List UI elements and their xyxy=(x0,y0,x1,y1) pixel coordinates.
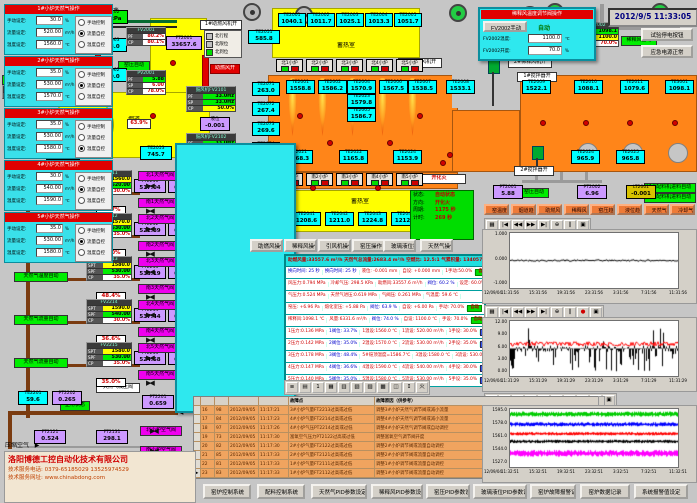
burner-off-indicator xyxy=(411,180,419,186)
instrument-value: 1011.7 xyxy=(308,19,334,25)
alarm-row-marker xyxy=(194,415,201,424)
burner-on-indicator xyxy=(371,66,379,72)
valve-icon[interactable]: ▶◀ xyxy=(146,226,153,233)
field-input[interactable]: 1580.0 xyxy=(36,248,63,257)
instrument-box-TE3001: TE30011098.1 xyxy=(665,80,694,94)
x-axis-tick: 11:32:51 xyxy=(501,469,519,474)
radio-dot[interactable] xyxy=(78,71,85,78)
instrument-box-FT2001: FT200133657.6 xyxy=(166,36,202,50)
summary-cell: 1温设:1560.0 ℃ xyxy=(360,330,400,334)
summary-cell: 手设: 70.0% xyxy=(440,318,471,322)
gas-auto-label: 天然气流量自动 xyxy=(14,315,68,325)
alarm-cell-time: 11:17:23 xyxy=(259,415,289,424)
burner-南3小炉: 南3小炉 xyxy=(336,173,363,186)
alarm-cell-fault: 3#小炉气量FT2213过高或过低 xyxy=(289,406,375,415)
summary-cell: 4流设: 540.00 m³/h xyxy=(400,366,447,370)
instrument-value: 965.8 xyxy=(617,156,644,162)
radio-label: 温度自控 xyxy=(87,250,105,256)
summary-cell: 4阀位: 36.6% xyxy=(327,366,360,370)
instrument-box-TE2001: TE20011558.8 xyxy=(286,80,315,94)
radio-label: 手动控制 xyxy=(87,124,105,130)
x-axis-tick: 23:32:51 xyxy=(585,469,603,474)
instrument-value: 1538.5 xyxy=(409,86,436,92)
radio-option[interactable]: 手动控制 xyxy=(76,121,111,132)
button-试验停电按钮[interactable]: 试验停电按钮 xyxy=(641,28,693,41)
trend-button-窑压趋势[interactable]: 窑压趋势 xyxy=(590,204,615,215)
burner-off-indicator xyxy=(321,180,329,186)
burner-off-indicator xyxy=(351,66,359,72)
radio-dot[interactable] xyxy=(78,134,85,141)
radio-option[interactable]: 流量自控 xyxy=(76,236,111,247)
radio-option[interactable]: 手动控制 xyxy=(76,69,111,80)
radio-option[interactable]: 温度自控 xyxy=(76,143,111,154)
field-label: 流量设定: xyxy=(7,134,27,140)
x-axis-tick: 19:32:51 xyxy=(557,469,575,474)
panel-param: CP xyxy=(127,40,143,45)
trend-chart-2: 1595.01578.01561.01544.01527.012/09/0411… xyxy=(482,405,697,483)
toolbar-icon[interactable]: ▥ xyxy=(338,382,350,393)
burner-gas-panel-title: 3#小炉天然气操作 xyxy=(5,109,112,118)
pipe xyxy=(8,411,178,415)
radio-label: 流量自控 xyxy=(87,83,105,89)
instrument-box-TE2053: TE2053745.7 xyxy=(140,146,172,160)
alarm-cell-date: 2012/09/05 xyxy=(229,406,259,415)
panel-value: 5.88 xyxy=(143,77,165,82)
y-axis-tick: 0.000 xyxy=(485,256,507,261)
radio-label: 流量自控 xyxy=(87,187,105,193)
toolbar-icon[interactable]: ▩ xyxy=(377,382,389,393)
summary-cell: 5手设: 35.0% xyxy=(447,378,480,382)
alarm-cell-fault: 2#小炉气量FT2122过高或过低 xyxy=(289,442,375,451)
alarm-cell-code: 83 xyxy=(215,469,229,478)
y-axis-tick: 1595.0 xyxy=(485,407,507,412)
summary-row: 稀释风:1098.1 ℃风量:6331.6 m³/h阀位: 74.0 %自设: … xyxy=(286,315,484,327)
summary-row: 窑压: +6.96 Pa熔化室压: +5.88 Pa阀位: 63.9 %自设: … xyxy=(286,303,484,315)
toolbar-icon[interactable]: ≡ xyxy=(286,382,298,393)
field-unit: ℃ xyxy=(65,42,70,47)
burner-on-indicator xyxy=(311,66,319,72)
field-label: 温度设定: xyxy=(7,250,27,256)
radio-dot[interactable] xyxy=(78,19,85,26)
x-axis-tick: 19:31:29 xyxy=(557,378,575,383)
burner-gas-panel-1: 1#小炉天然气操作手动设定:30.0%流量设定:520.00m³/h温度设定:1… xyxy=(4,4,113,55)
instrument-value: 965.9 xyxy=(572,156,599,162)
controller-panel-FV2001: FV2001PF80.2%CP80.1% xyxy=(126,27,166,46)
control-mode-radios: 手动控制流量自控温度自控 xyxy=(75,68,112,106)
field-input[interactable]: 530.00 xyxy=(36,80,63,89)
op-button-引风机操作[interactable]: 引风机操作 xyxy=(318,239,351,252)
valve-icon[interactable]: ▶◀ xyxy=(146,183,153,190)
burner-北1小炉: 北1小炉 xyxy=(276,59,303,72)
summary-cell: 1手设: 30.0% xyxy=(447,330,480,334)
instrument-value: 1586.2 xyxy=(319,86,346,92)
alarm-header-cell xyxy=(259,397,289,406)
bottom-button-窑炉故障报警记录[interactable]: 窑炉故障报警记录 xyxy=(530,484,576,499)
dilution-field-unit: % xyxy=(565,48,569,53)
trend-button-窑温度趋势[interactable]: 窑温度趋势 xyxy=(484,204,509,215)
gas-valve-position: 35.0% xyxy=(96,378,126,387)
radio-option[interactable]: 流量自控 xyxy=(76,28,111,39)
field-input[interactable]: 1570.0 xyxy=(36,92,63,101)
burner-南5小炉: 南5小炉 xyxy=(396,173,423,186)
bottom-button-配料控制系统[interactable]: 配料控制系统 xyxy=(257,484,305,499)
instrument-value: 1040.1 xyxy=(279,19,305,25)
instrument-box-TE2024: TE20241153.9 xyxy=(393,150,422,164)
field-unit: m³/h xyxy=(65,82,74,87)
field-label: 手动设定: xyxy=(7,18,27,24)
bottom-button-稀释风PID参数设定[interactable]: 稀释风PID参数设定 xyxy=(371,484,423,499)
button-应急电源正常[interactable]: 应急电源正常 xyxy=(641,45,693,58)
summary-cell: 风量:6331.6 m³/h xyxy=(327,318,369,322)
radio-label: 流量自控 xyxy=(87,239,105,245)
vendor-name: 洛阳博德工控自动化技术有限公司 xyxy=(8,454,192,465)
radio-dot[interactable] xyxy=(78,145,85,152)
alarm-cell-time: 11:17:30 xyxy=(259,442,289,451)
alarm-cell-code: 81 xyxy=(215,460,229,469)
panel-value: 35.0% xyxy=(103,361,131,366)
alarm-cell-time: 11:17:33 xyxy=(259,451,289,460)
radio-label: 手动控制 xyxy=(87,72,105,78)
field-input[interactable]: 1590.0 xyxy=(36,196,63,205)
instrument-box-PT2001: PT20015.88 xyxy=(493,185,523,199)
instrument-value: 0.265 xyxy=(53,397,81,403)
panel-param: SPF xyxy=(87,269,103,274)
instrument-value: 1088.1 xyxy=(575,86,602,92)
alarm-cell-code: 98 xyxy=(215,406,229,415)
radio-option[interactable]: 流量自控 xyxy=(76,132,111,143)
status-key: 周期: xyxy=(413,207,435,215)
x-axis-tick: 15:32:51 xyxy=(529,469,547,474)
instrument-box-TE2008: TE20081533.1 xyxy=(446,80,475,94)
bottom-button-玻璃液位PID参数设定[interactable]: 玻璃液位PID参数设定 xyxy=(473,484,527,499)
controller-panel-鼓风机FV2101: 鼓风机FV2101PF33.0HzSP33.0HzCP50.0% xyxy=(186,86,236,112)
dilution-field-input[interactable]: 70.0 xyxy=(528,46,562,55)
radio-dot[interactable] xyxy=(78,41,85,48)
instrument-value: 1165.8 xyxy=(340,156,367,162)
summary-cell: 4手设: 30.0% xyxy=(447,366,480,370)
field-unit: ℃ xyxy=(65,198,70,203)
radio-dot[interactable] xyxy=(78,93,85,100)
scada-furnace-overview-screen: 1#余热锅炉2#余热锅炉烟气◀软化水◀烟囱烟道窑压自动助燃风开1#助燃风机开1#… xyxy=(0,0,697,503)
field-unit: % xyxy=(65,70,69,75)
summary-cell: 阀位: 63.9 % xyxy=(368,306,400,310)
instrument-value: 33657.6 xyxy=(167,42,201,48)
alarm-row-marker xyxy=(194,406,201,415)
panel-value: 1580.0 xyxy=(103,349,131,354)
summary-row: 风压力:0.794 MPa冷却气压: 298.5 KPa助燃风:33557.6 … xyxy=(286,279,484,291)
summary-cell: 天然气进压:0.619 MPa xyxy=(329,294,380,298)
chart-plot-area xyxy=(509,408,679,468)
trend-chart-0: 1.0000.000-1.00012/09/0411:31:5615:31:56… xyxy=(482,229,697,304)
pipe xyxy=(560,172,563,181)
x-axis-date: 12/09/04 xyxy=(484,290,502,295)
alarm-cell-date: 2012/09/05 xyxy=(229,469,259,478)
y-axis-tick: 12.00 xyxy=(485,319,507,324)
trend-button-助燃风趋势[interactable]: 助燃风趋势 xyxy=(537,204,562,215)
field-unit: % xyxy=(65,174,69,179)
label-助燃风开: 助燃风开 xyxy=(210,64,240,74)
field-unit: % xyxy=(65,226,69,231)
alarm-cell-n: 16 xyxy=(201,406,215,415)
burner-on-indicator xyxy=(281,66,289,72)
radio-option[interactable]: 温度自控 xyxy=(76,195,111,206)
trend-button-冷却气趋势[interactable]: 冷却气趋势 xyxy=(670,204,695,215)
burner-on-indicator xyxy=(311,180,319,186)
summary-row: 1压力:0.136 MPa1阀位: 33.7%1温设:1560.0 ℃1流设: … xyxy=(286,327,484,339)
op-button-窑压操作[interactable]: 窑压操作 xyxy=(352,239,385,252)
field-input[interactable]: 530.00 xyxy=(36,236,63,245)
x-axis-tick: 11:31:29 xyxy=(501,378,519,383)
instrument-value: 0.659 xyxy=(143,401,173,407)
summary-cell: 3压力:0.178 MPa xyxy=(286,354,327,358)
x-axis-tick: 7:31:29 xyxy=(641,378,656,383)
alarm-cell-code: 85 xyxy=(215,451,229,460)
radio-option[interactable]: 手动控制 xyxy=(76,17,111,28)
dilution-field-unit: ℃ xyxy=(565,36,570,41)
summary-cell: 4压力:0.147 MPa xyxy=(286,366,327,370)
vendor-phone: 技术服务电话: 0379-65185029 13525974529 xyxy=(8,465,192,473)
instrument-value: -0.001 xyxy=(627,191,655,197)
x-axis-tick: 11:31:56 xyxy=(501,290,519,295)
instrument-value: 585.8 xyxy=(249,36,279,42)
y-axis-tick: 6.00 xyxy=(485,344,507,349)
panel-param: CP xyxy=(87,275,103,280)
alarm-header-cell xyxy=(215,397,229,406)
field-label: 流量设定: xyxy=(7,186,27,192)
x-axis-tick: 7:31:56 xyxy=(641,290,656,295)
panel-param: CP xyxy=(127,89,143,94)
field-label: 手动设定: xyxy=(7,70,27,76)
air-valve-icon[interactable]: ▶◀ xyxy=(150,428,157,435)
burner-gas-panel-title: 5#小炉天然气操作 xyxy=(5,213,112,222)
instrument-box-TE2024: TE2024965.9 xyxy=(571,150,600,164)
instrument-value: -0.001 xyxy=(201,123,229,129)
op-button-天然气操作[interactable]: 天然气操作 xyxy=(420,239,453,252)
field-label: 温度设定: xyxy=(7,146,27,152)
burner-gas-panel-3: 3#小炉天然气操作手动设定:35.0%流量设定:530.00m³/h温度设定:1… xyxy=(4,108,113,159)
field-input[interactable]: 1580.0 xyxy=(36,144,63,153)
panel-value: 530.00 xyxy=(103,355,131,360)
summary-cell: 5#碹顶温度=1586.7℃ xyxy=(360,354,413,358)
valve-icon[interactable]: ▶◀ xyxy=(146,380,153,387)
legend-label: 北到位 xyxy=(215,49,228,55)
summary-cell: 2阀位: 35.0% xyxy=(327,342,360,346)
burner-gas-panel-4: 4#小炉天然气操作手动设定:30.0%流量设定:540.00m³/h温度设定:1… xyxy=(4,160,113,211)
alarm-cell-code: 84 xyxy=(215,415,229,424)
bottom-button-系统报警值设定[interactable]: 系统报警值设定 xyxy=(634,484,688,499)
burner-on-indicator xyxy=(341,180,349,186)
field-input[interactable]: 35.0 xyxy=(36,120,63,129)
instrument-value: 1013.3 xyxy=(366,19,392,25)
panel-value: 30.0% xyxy=(103,318,131,323)
radio-option[interactable]: 手动控制 xyxy=(76,225,111,236)
trend-button-稀释风趋势[interactable]: 稀释风趋势 xyxy=(564,204,589,215)
bottom-button-天然气PID参数设定[interactable]: 天然气PID参数设定 xyxy=(311,484,367,499)
radio-option[interactable]: 流量自控 xyxy=(76,184,111,195)
instrument-box-TE2025: TE2025965.8 xyxy=(616,150,645,164)
alarm-cell-n: 19 xyxy=(201,433,215,442)
summary-cell: 2压力:0.142 MPa xyxy=(286,342,327,346)
sensor-dot xyxy=(440,160,446,166)
radio-label: 手动控制 xyxy=(87,176,105,182)
alarm-cell-fault: 4#小炉气量FT2214过高或过低 xyxy=(289,415,375,424)
field-input[interactable]: 540.00 xyxy=(36,184,63,193)
field-input[interactable]: 520.00 xyxy=(36,28,63,37)
label-窑压自动: 窑压自动 xyxy=(519,188,549,198)
instrument-box-TE2001: TE20011040.1 xyxy=(278,13,306,27)
panel-param: SPF xyxy=(87,312,103,317)
x-axis-tick: 23:31:29 xyxy=(585,378,603,383)
y-axis-tick: 1578.0 xyxy=(485,420,507,425)
radio-dot[interactable] xyxy=(78,227,85,234)
summary-cell: 2手设: 35.0% xyxy=(447,342,480,346)
toolbar-icon[interactable]: ◫ xyxy=(390,382,402,393)
summary-header: 助燃风量:33557.6 m³/h 天然气总流量:2683.4 m³/h 空燃比… xyxy=(286,256,484,267)
summary-cell: 3流设: 530.00 m³/h xyxy=(453,354,484,358)
valve-icon[interactable]: ▶◀ xyxy=(146,269,153,276)
x-axis-tick: 11:31:29 xyxy=(669,378,687,383)
instrument-box-TE2009: TE20091522.1 xyxy=(522,80,551,94)
radio-option[interactable]: 温度自控 xyxy=(76,91,111,102)
x-axis-date: 12/09/04 xyxy=(484,469,502,474)
field-input[interactable]: 35.0 xyxy=(36,68,63,77)
trend-button-天然气趋势[interactable]: 天然气趋势 xyxy=(644,204,669,215)
valve-icon[interactable]: ▶◀ xyxy=(146,312,153,319)
toolbar-icon[interactable]: ▤ xyxy=(299,382,311,393)
sensor-dot xyxy=(447,152,453,158)
radio-dot[interactable] xyxy=(78,82,85,89)
alarm-header-cell xyxy=(229,397,259,406)
status-value: 1175 秒 xyxy=(435,207,456,215)
toolbar-icon[interactable]: 1 xyxy=(312,382,324,393)
burner-北3小炉: 北3小炉 xyxy=(336,59,363,72)
radio-dot[interactable] xyxy=(78,175,85,182)
toolbar-icon[interactable]: ▨ xyxy=(364,382,376,393)
instrument-box-PT2201: PT22010.659 xyxy=(142,395,174,409)
gas-valve-panel-FV2214: FV2214SPT1590.0SPF540.00CP30.0% xyxy=(86,299,132,324)
op-button-助燃风操作[interactable]: 助燃风操作 xyxy=(250,239,283,252)
label-蓄热室: 蓄热室 xyxy=(346,198,374,207)
alarm-cell-fault: 2#小炉气量FT2121过高或过低 xyxy=(289,451,375,460)
x-axis-tick: 23:31:56 xyxy=(585,290,603,295)
summary-row: 换向时间: 25 秒换向时间: 25 秒液位: -0.001 mm自设: +0.… xyxy=(286,267,484,279)
panel-value: 33.0Hz xyxy=(203,94,235,99)
instrument-box-TE2007: TE20071538.5 xyxy=(408,80,437,94)
process-summary-panel: 助燃风量:33557.6 m³/h 天然气总流量:2683.4 m³/h 空燃比… xyxy=(284,254,486,382)
dilution-field-input[interactable]: 1100.0 xyxy=(528,34,562,43)
panel-value: 80.2% xyxy=(143,34,165,39)
field-label: 手动设定: xyxy=(7,174,27,180)
trend-button-烟道趋势[interactable]: 烟道趋势 xyxy=(511,204,536,215)
label-北小炉空气阀: 北小炉空气阀 xyxy=(140,426,182,436)
instrument-value: 1533.1 xyxy=(447,86,474,92)
legend-indicator xyxy=(206,41,213,48)
dilution-field-label: FV2002开度: xyxy=(483,48,511,54)
vendor-web: 技术服务网址: www.chinabdong.com xyxy=(8,473,192,481)
alarm-cell-date: 2012/09/05 xyxy=(229,415,259,424)
field-unit: ℃ xyxy=(65,250,70,255)
field-unit: % xyxy=(65,122,69,127)
stirrer-icon xyxy=(488,60,498,106)
field-unit: % xyxy=(65,18,69,23)
bottom-button-窑炉数据记录[interactable]: 窑炉数据记录 xyxy=(580,484,630,499)
radio-option[interactable]: 手动控制 xyxy=(76,173,111,184)
trend-button-液位趋势[interactable]: 液位趋势 xyxy=(617,204,642,215)
op-button-稀释风操作[interactable]: 稀释风操作 xyxy=(284,239,317,252)
status-key: 状态: xyxy=(413,192,435,200)
summary-cell: 自设: 1100.0 ℃ xyxy=(402,318,440,322)
summary-cell: 2流设: 530.00 m³/h xyxy=(400,342,447,346)
radio-dot[interactable] xyxy=(78,238,85,245)
x-axis-tick: 7:32:51 xyxy=(641,469,656,474)
instrument-box-TE2004: TE20041013.3 xyxy=(365,13,393,27)
panel-param: SPT xyxy=(87,349,103,354)
field-input[interactable]: 35.0 xyxy=(36,224,63,233)
instrument-value: 1025.1 xyxy=(337,19,363,25)
field-input[interactable]: 30.0 xyxy=(36,16,63,25)
radio-dot[interactable] xyxy=(78,249,85,256)
radio-dot[interactable] xyxy=(78,197,85,204)
summary-cell: 设定: 60.0% xyxy=(458,282,485,286)
instrument-box-TE2003: TE20031025.1 xyxy=(336,13,364,27)
burner-南4小炉: 南4小炉 xyxy=(366,173,393,186)
summary-cell: 手动: 70.0% xyxy=(437,306,468,310)
burner-gas-operation-popup xyxy=(175,143,296,413)
y-axis-tick: 1561.0 xyxy=(485,433,507,438)
radio-dot[interactable] xyxy=(78,123,85,130)
toolbar-icon[interactable]: ▧ xyxy=(351,382,363,393)
radio-option[interactable]: 温度自控 xyxy=(76,39,111,50)
gas-valve-panel-FV2215: FV2215SPT1580.0SPF530.00CP35.0% xyxy=(86,342,132,367)
toolbar-icon[interactable]: ↕ xyxy=(403,382,415,393)
bottom-button-窑炉控制系统[interactable]: 窑炉控制系统 xyxy=(203,484,251,499)
reversal-status-panel: 状态:自动状态方向:开化火周期:1175 秒计时:269 秒 xyxy=(410,190,474,240)
panel-value: 1580.0 xyxy=(103,263,131,268)
panel-value: 540.00 xyxy=(103,312,131,317)
instrument-box-TE2043: TE20431224.8 xyxy=(358,212,387,226)
sensor-dot xyxy=(387,140,393,146)
instrument-value: 298.1 xyxy=(97,436,127,442)
toolbar-icon[interactable]: 火 xyxy=(416,382,428,393)
x-axis-date: 12/09/04 xyxy=(484,378,502,383)
chart-canvas xyxy=(510,321,678,376)
radio-dot[interactable] xyxy=(78,30,85,37)
alarm-cell-date: 2012/09/05 xyxy=(229,424,259,433)
alarm-header-fault: 故障点 xyxy=(289,397,375,406)
op-button-玻璃液位操作[interactable]: 玻璃液位操作 xyxy=(383,239,416,252)
field-label: 温度设定: xyxy=(7,42,27,48)
bottom-button-窑压PID参数设定[interactable]: 窑压PID参数设定 xyxy=(426,484,470,499)
radio-dot[interactable] xyxy=(78,186,85,193)
instrument-box-TE2071: TE2071263.0 xyxy=(252,82,280,96)
summary-cell: 3温设:1580.0 ℃ xyxy=(413,354,453,358)
panel-param: SPT xyxy=(87,263,103,268)
field-input[interactable]: 1560.0 xyxy=(36,40,63,49)
sensor-dot xyxy=(297,113,303,119)
toolbar-icon[interactable]: ▦ xyxy=(325,382,337,393)
radio-option[interactable]: 流量自控 xyxy=(76,80,111,91)
alarm-cell-code: 97 xyxy=(215,424,229,433)
valve-icon[interactable]: ▶◀ xyxy=(146,355,153,362)
y-axis-tick: 1.000 xyxy=(485,231,507,236)
summary-cell: 窑压: +6.96 Pa xyxy=(286,306,323,310)
fv2002-manual-button[interactable]: FV2002手动 xyxy=(483,21,527,32)
field-input[interactable]: 30.0 xyxy=(36,172,63,181)
radio-option[interactable]: 温度自控 xyxy=(76,247,111,258)
radio-label: 手动控制 xyxy=(87,228,105,234)
field-input[interactable]: 530.00 xyxy=(36,132,63,141)
x-axis-tick: 3:31:29 xyxy=(613,378,628,383)
